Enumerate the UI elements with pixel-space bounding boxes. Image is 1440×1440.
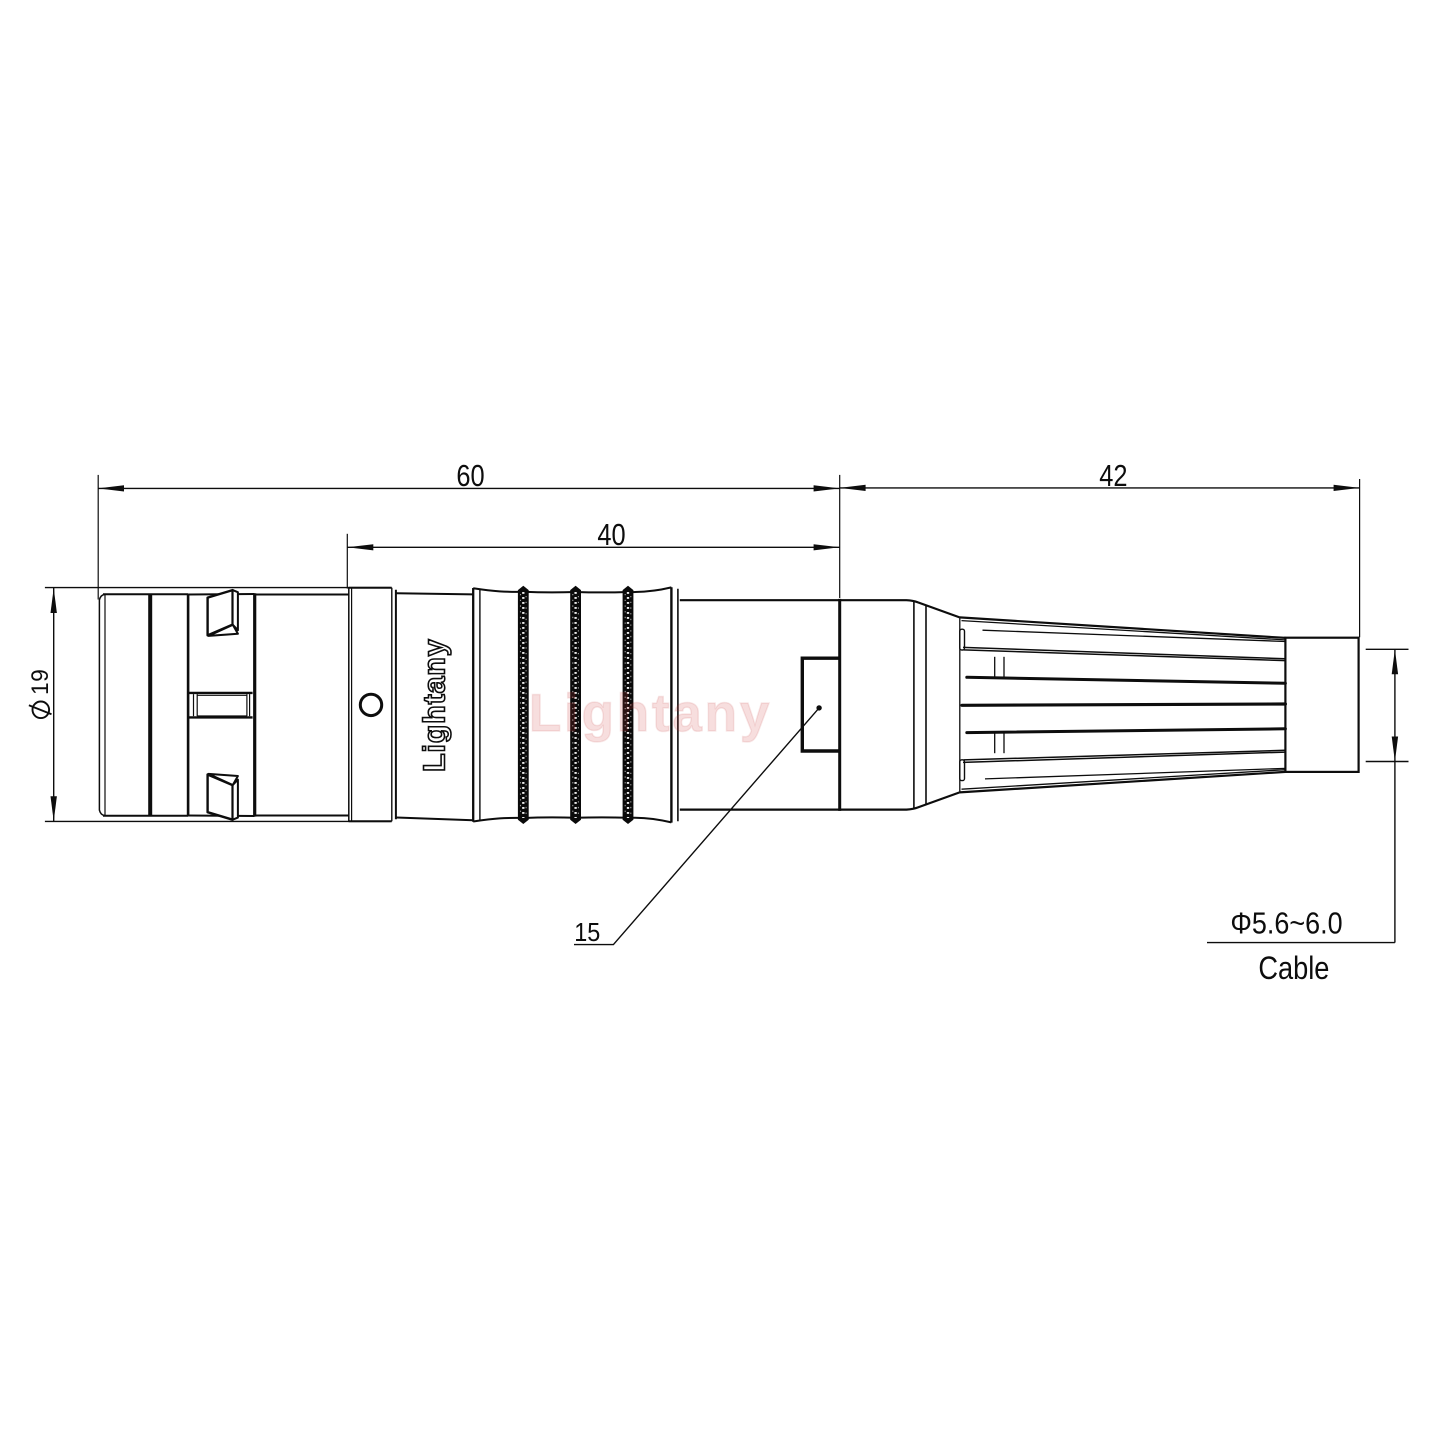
svg-text:Lightany: Lightany bbox=[418, 639, 452, 772]
svg-text:19: 19 bbox=[27, 669, 54, 695]
svg-text:40: 40 bbox=[597, 518, 625, 553]
svg-text:Cable: Cable bbox=[1258, 951, 1329, 987]
svg-text:42: 42 bbox=[1099, 459, 1127, 494]
svg-text:Lightany: Lightany bbox=[529, 684, 772, 743]
svg-text:Φ5.6~6.0: Φ5.6~6.0 bbox=[1230, 907, 1342, 941]
svg-text:60: 60 bbox=[456, 459, 484, 494]
svg-text:15: 15 bbox=[574, 919, 600, 947]
